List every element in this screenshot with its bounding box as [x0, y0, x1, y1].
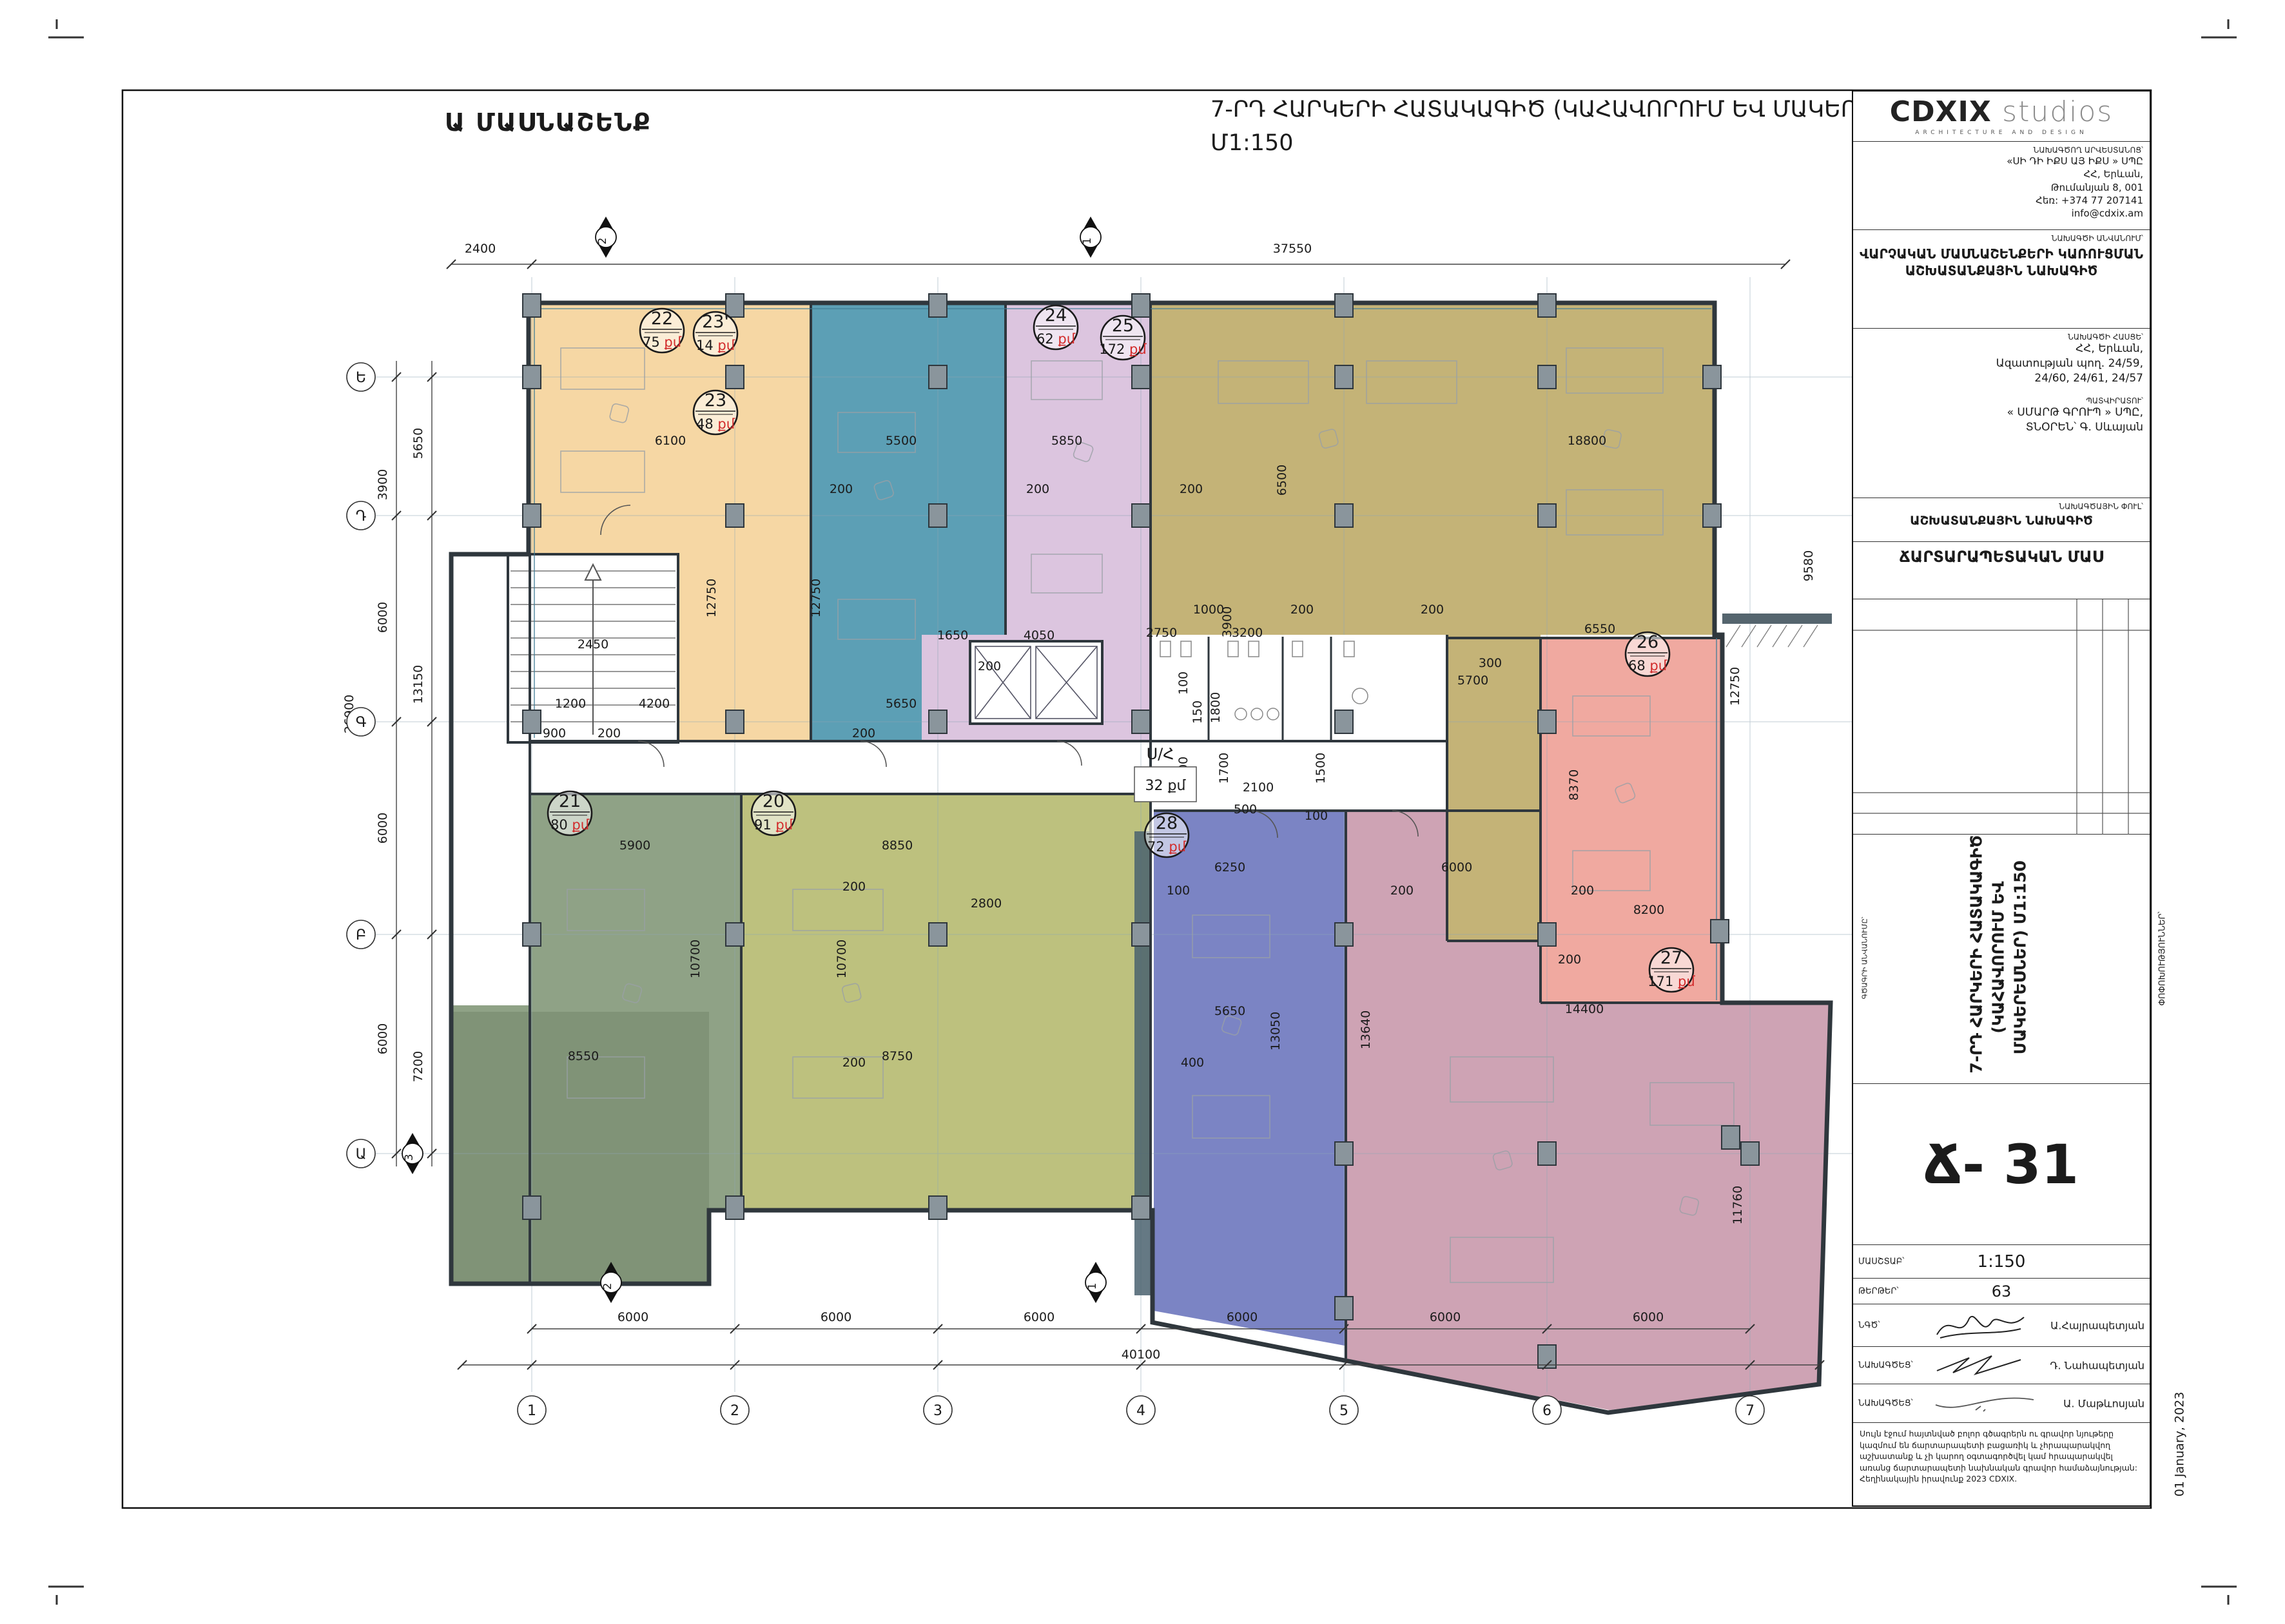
grid-bubble-col-label: 5: [1339, 1403, 1348, 1419]
dimension-text: 4200: [639, 697, 670, 711]
dimension-text: 200: [842, 1056, 866, 1070]
dimension-text: 9580: [1802, 550, 1816, 581]
column: [1132, 365, 1150, 389]
studio-email: info@cdxix.am: [1853, 207, 2143, 220]
room-number: 26: [1637, 632, 1658, 652]
sheet-code-cell: Ճ- 31: [1853, 1084, 2150, 1245]
designed2-name: Ա. Մաթևոսյան: [2063, 1397, 2144, 1409]
column: [1132, 294, 1150, 317]
dimension-text: 5700: [1457, 673, 1488, 688]
dimension-text: 200: [1390, 884, 1414, 898]
logo-cell: CDXIX studios ARCHITECTURE AND DESIGN: [1853, 92, 2150, 142]
column: [1741, 1142, 1759, 1165]
room-area: 72 քմ: [1147, 839, 1187, 855]
designed2-label: ՆԱԽԱԳԾԵՑ՝: [1858, 1398, 1913, 1408]
lobby-area: 32 քմ: [1145, 778, 1187, 794]
column: [726, 1196, 744, 1219]
dimension-text: 200: [1026, 482, 1049, 496]
dimension-text: 1000: [1193, 603, 1224, 617]
grid-bubble-col-label: 4: [1136, 1403, 1145, 1419]
column: [1335, 923, 1353, 946]
address-client-cell: ՆԱԽԱԳԾԻ ՀԱՍՑԵ՝ ՀՀ, Երևան, Ազատության պող…: [1853, 329, 2150, 498]
column: [1335, 365, 1353, 389]
dimension-text: 8370: [1567, 769, 1581, 800]
column: [929, 710, 947, 733]
room-area: 171 քմ: [1648, 974, 1695, 989]
dimension-text: 12750: [809, 579, 823, 617]
dimension-text: 14400: [1565, 1002, 1604, 1016]
dimension-text: 40100: [1122, 1348, 1160, 1362]
stage-value: ԱՇԽԱՏԱՆՔԱՅԻՆ ՆԱԽԱԳԻԾ: [1853, 511, 2150, 528]
dimension-text: 200: [830, 482, 853, 496]
part-cell: ՃԱՐՏԱՐԱՊԵՏԱԿԱՆ ՄԱՍ: [1853, 542, 2150, 599]
dimension-text: 12750: [1728, 667, 1742, 706]
room-area: 75 քմ: [643, 334, 682, 350]
dimension-text: 5650: [411, 428, 425, 459]
column: [1538, 923, 1556, 946]
column: [1538, 365, 1556, 389]
room-number: 24: [1045, 305, 1067, 325]
column: [1538, 294, 1556, 317]
column: [726, 365, 744, 389]
dimension-text: 300: [1479, 656, 1502, 670]
column: [1538, 504, 1556, 527]
client-director: ՏՆՕՐԵՆ՝ Գ. Սևայան: [1853, 420, 2143, 435]
dimension-text: 100: [1305, 809, 1328, 823]
room-number: 25: [1112, 316, 1134, 336]
column: [726, 923, 744, 946]
designed-row: ՆԱԽԱԳԾԵՑ՝ Դ. Նահապետյան: [1853, 1347, 2150, 1384]
dimension-text: 2100: [1243, 780, 1274, 795]
dimension-text: 13150: [411, 665, 425, 704]
sheet-code: Ճ- 31: [1853, 1084, 2150, 1245]
address-line1: ՀՀ, Երևան,: [1853, 342, 2143, 356]
dimension-text: 500: [1234, 802, 1257, 817]
dimension-text: 200: [852, 726, 875, 740]
dimension-text: 1800: [1209, 692, 1223, 723]
column: [1132, 923, 1150, 946]
dimension-text: 3200: [1232, 626, 1263, 640]
studio-street: Թումանյան 8, 001: [1853, 181, 2143, 194]
dimension-text: 200: [1421, 603, 1444, 617]
dimension-text: 5650: [886, 697, 917, 711]
designed-signature: [1930, 1348, 2034, 1380]
dimension-text: 5650: [1214, 1004, 1245, 1018]
building-label: Ա ՄԱՍՆԱՇԵՆՔ: [445, 108, 652, 137]
column: [1132, 504, 1150, 527]
column: [523, 365, 541, 389]
dimension-text: 5500: [886, 434, 917, 448]
dimension-text: 6000: [1441, 860, 1472, 875]
address-line3: 24/60, 24/61, 24/57: [1853, 371, 2143, 386]
column: [1132, 710, 1150, 733]
room-number: 23: [705, 391, 726, 411]
room-number: 27: [1660, 948, 1682, 968]
room-number: 22: [651, 309, 673, 329]
project-name-label: ՆԱԽԱԳԾԻ ԱՆՎԱՆՈՒՄ՝: [1853, 230, 2150, 243]
section-marker-number: 2: [596, 238, 609, 245]
dimension-text: 6100: [655, 434, 686, 448]
dimension-text: 900: [543, 726, 566, 740]
grid-bubble-col-label: 1: [527, 1403, 536, 1419]
designed-name: Դ. Նահապետյան: [2050, 1359, 2144, 1371]
dimension-text: 10700: [835, 940, 849, 978]
revision-table: [1853, 599, 2150, 835]
dimension-text: 8200: [1633, 903, 1664, 917]
dimension-text: 150: [1191, 701, 1205, 724]
client-label: ՊԱՏՎԻՐԱՏՈՒ՝: [1853, 392, 2150, 405]
dimension-text: 18800: [1568, 434, 1606, 448]
client-company: « ՍՄԱՐԹ ԳՐՈՒՊ » ՍՊԸ,: [1853, 405, 2143, 420]
drew-signature: [1930, 1306, 2034, 1344]
column: [726, 710, 744, 733]
dimension-text: 6250: [1214, 860, 1245, 875]
address-label: ՆԱԽԱԳԾԻ ՀԱՍՑԵ՝: [1853, 329, 2150, 342]
column: [523, 294, 541, 317]
column: [1335, 294, 1353, 317]
sheets-row: ԹԵՐԹԵՐ՝ 63: [1853, 1279, 2150, 1304]
section-marker-number: 1: [1086, 1283, 1099, 1290]
dimension-text: 1200: [555, 697, 586, 711]
column: [1703, 504, 1721, 527]
column: [1335, 1142, 1353, 1165]
studio-cell: ՆԱԽԱԳԾՈՂ ԱՐՎԵՍՏԱՆՈՑ՝ «ՍԻ ԴԻ ԻՔՍ ԱՅ ԻՔՍ »…: [1853, 142, 2150, 230]
studio-label: ՆԱԽԱԳԾՈՂ ԱՐՎԵՍՏԱՆՈՑ՝: [1853, 142, 2150, 155]
dimension-text: 400: [1181, 1056, 1204, 1070]
dimension-text: 12750: [705, 579, 719, 617]
column: [1538, 710, 1556, 733]
room-area: 172 քմ: [1099, 342, 1147, 357]
designed-label: ՆԱԽԱԳԾԵՑ՝: [1858, 1360, 1913, 1370]
room-number: 20: [763, 791, 784, 811]
dimension-text: 6000: [376, 602, 390, 633]
drawing-name-cell: ԳԾԱԳՐԻ ԱՆՎԱՆՈՒՄԸ՝ 7-ՐԴ ՀԱՐԿԵՐԻ ՀԱՏԱԿԱԳԻԾ…: [1853, 835, 2150, 1084]
dimension-text: 6000: [1024, 1310, 1055, 1324]
grid-bubble-row-label: Գ: [356, 715, 367, 731]
room-number: 28: [1156, 813, 1178, 833]
brand-sub: studios: [2002, 95, 2113, 128]
dimension-text: 13640: [1359, 1010, 1373, 1049]
drawing-name-label: ԳԾԱԳՐԻ ԱՆՎԱՆՈՒՄԸ՝: [1861, 907, 1869, 1010]
column: [1538, 1142, 1556, 1165]
drawing-name: 7-ՐԴ ՀԱՐԿԵՐԻ ՀԱՏԱԿԱԳԻԾ (ԿԱՀԱՎՈՐՈՒՄ ԵՎ ՄԱ…: [1965, 842, 2030, 1074]
column: [929, 504, 947, 527]
dimension-text: 11760: [1731, 1186, 1745, 1224]
designed2-signature: [1930, 1386, 2040, 1419]
stage-cell: ՆԱԽԱԳԾԱՅԻՆ ՓՈՒԼ՝ ԱՇԽԱՏԱՆՔԱՅԻՆ ՆԱԽԱԳԻԾ: [1853, 498, 2150, 542]
dimension-text: 100: [1176, 672, 1191, 695]
dimension-text: 5850: [1051, 434, 1082, 448]
project-name: ՎԱՐՉԱԿԱՆ ՄԱՍՆԱՇԵՆՔԵՐԻ ԿԱՌՈՒՑՄԱՆ ԱՇԽԱՏԱՆՔ…: [1853, 243, 2150, 282]
dimension-text: 7200: [411, 1051, 425, 1082]
dimension-text: 200: [1180, 482, 1203, 496]
dimension-text: 8550: [568, 1049, 599, 1063]
disclaimer-text: Սույն էջում հայտնված բոլոր գծագրերն ու գ…: [1853, 1423, 2150, 1490]
column: [523, 504, 541, 527]
room-area: 62 քմ: [1036, 331, 1076, 347]
column: [929, 1196, 947, 1219]
dimension-text: 13050: [1269, 1012, 1283, 1050]
column: [523, 710, 541, 733]
dimension-text: 6000: [376, 813, 390, 844]
disclaimer-cell: Սույն էջում հայտնված բոլոր գծագրերն ու գ…: [1853, 1423, 2150, 1507]
dimension-text: 6000: [376, 1023, 390, 1054]
date-label: 01 January, 2023: [2172, 1392, 2186, 1497]
dimension-text: 37550: [1273, 242, 1312, 256]
grid-bubble-row-label: Դ: [356, 508, 367, 525]
brand-name: CDXIX: [1890, 95, 1992, 128]
dimension-text: 200: [1571, 884, 1594, 898]
dimension-text: 200: [1558, 952, 1581, 967]
column: [929, 923, 947, 946]
room-area: 91 քմ: [754, 817, 793, 833]
studio-company: «ՍԻ ԴԻ ԻՔՍ ԱՅ ԻՔՍ » ՍՊԸ: [1853, 155, 2143, 168]
page-title: 7-ՐԴ ՀԱՐԿԵՐԻ ՀԱՏԱԿԱԳԻԾ (ԿԱՀԱՎՈՐՈՒՄ ԵՎ ՄԱ…: [1211, 97, 1947, 122]
dimension-text: 200: [842, 880, 866, 894]
column: [726, 504, 744, 527]
column: [523, 923, 541, 946]
dimension-text: 3900: [376, 469, 390, 500]
dimension-text: 6550: [1584, 622, 1615, 636]
dimension-text: 6000: [1430, 1310, 1461, 1324]
column: [1711, 920, 1729, 943]
lobby-name: Ս/Հ: [1147, 745, 1174, 763]
studio-phone: Հեռ: +374 77 207141: [1853, 194, 2143, 207]
part-value: ՃԱՐՏԱՐԱՊԵՏԱԿԱՆ ՄԱՍ: [1853, 542, 2150, 567]
room-number: 21: [559, 791, 581, 811]
dimension-text: 6000: [1633, 1310, 1664, 1324]
dimension-text: 6000: [821, 1310, 851, 1324]
dimension-text: 200: [1290, 603, 1314, 617]
dimension-text: 200: [978, 659, 1001, 673]
grid-bubble-row-label: Ե: [356, 370, 366, 386]
grid-bubble-row-label: Ա: [356, 1146, 367, 1163]
stage-label: ՆԱԽԱԳԾԱՅԻՆ ՓՈՒԼ՝: [1853, 498, 2150, 511]
project-name-cell: ՆԱԽԱԳԾԻ ԱՆՎԱՆՈՒՄ՝ ՎԱՐՉԱԿԱՆ ՄԱՍՆԱՇԵՆՔԵՐԻ …: [1853, 230, 2150, 329]
grid-bubble-col-label: 6: [1542, 1403, 1551, 1419]
room-area: 48 քմ: [696, 416, 735, 432]
scale-value: 1:150: [1853, 1252, 2150, 1271]
drew-row: ՆԳԾ՝ Ա.Հայրապետյան: [1853, 1304, 2150, 1347]
room-number: 23': [702, 312, 729, 332]
dimension-text: 1650: [937, 628, 968, 643]
grid-bubble-row-label: Բ: [356, 927, 366, 943]
dimension-text: 1700: [1217, 753, 1231, 784]
column: [1335, 504, 1353, 527]
column: [1132, 1196, 1150, 1219]
dimension-text: 5900: [619, 838, 650, 853]
scale-row: ՄԱՍՇՏԱԲ՝ 1:150: [1853, 1245, 2150, 1279]
drawing-sheet: 2400375506000600060006000600060004010056…: [0, 0, 2285, 1624]
address-line2: Ազատության պող. 24/59,: [1853, 356, 2143, 371]
changes-label: ՓՈՓՈԽՈՒԹՅՈՒՆՆԵՐ՝: [2158, 911, 2168, 1005]
title-block: CDXIX studios ARCHITECTURE AND DESIGN ՆԱ…: [1852, 90, 2151, 1507]
column: [1722, 1126, 1740, 1149]
section-marker-number: 2: [601, 1283, 614, 1290]
dimension-text: 1500: [1314, 753, 1328, 784]
dimension-text: 2400: [465, 242, 496, 256]
dimension-text: 100: [1167, 884, 1190, 898]
dimension-text: 6000: [1227, 1310, 1258, 1324]
drew-label: ՆԳԾ՝: [1858, 1320, 1880, 1330]
room-area: 80 քմ: [550, 817, 590, 833]
dimension-text: 6500: [1275, 465, 1289, 496]
column: [523, 1196, 541, 1219]
designed2-row: ՆԱԽԱԳԾԵՑ՝ Ա. Մաթևոսյան: [1853, 1384, 2150, 1423]
dimension-text: 8750: [882, 1049, 913, 1063]
section-marker-number: 1: [1081, 238, 1094, 245]
sheets-value: 63: [1853, 1282, 2150, 1300]
dimension-text: 6000: [617, 1310, 648, 1324]
column: [1703, 365, 1721, 389]
brand-tagline: ARCHITECTURE AND DESIGN: [1853, 130, 2150, 136]
grid-bubble-col-label: 2: [730, 1403, 739, 1419]
column: [929, 294, 947, 317]
room-area: 14 քմ: [696, 338, 735, 353]
column: [1335, 710, 1353, 733]
page-title-scale: Մ1:150: [1211, 130, 1294, 156]
drew-name: Ա.Հայրապետյան: [2050, 1319, 2144, 1331]
column: [1335, 1297, 1353, 1320]
grid-bubble-col-label: 3: [933, 1403, 942, 1419]
dimension-text: 10700: [688, 940, 703, 978]
dimension-text: 8850: [882, 838, 913, 853]
dimension-text: 4050: [1024, 628, 1055, 643]
dimension-text: 2450: [578, 637, 608, 652]
column: [929, 365, 947, 389]
grid-bubble-col-label: 7: [1745, 1403, 1755, 1419]
studio-city: ՀՀ, Երևան,: [1853, 168, 2143, 180]
dimension-text: 2800: [971, 896, 1002, 911]
dimension-text: 2750: [1146, 626, 1177, 640]
room-area: 68 քմ: [1628, 658, 1668, 673]
dimension-text: 200: [598, 726, 621, 740]
section-marker-number: 3: [403, 1154, 416, 1161]
